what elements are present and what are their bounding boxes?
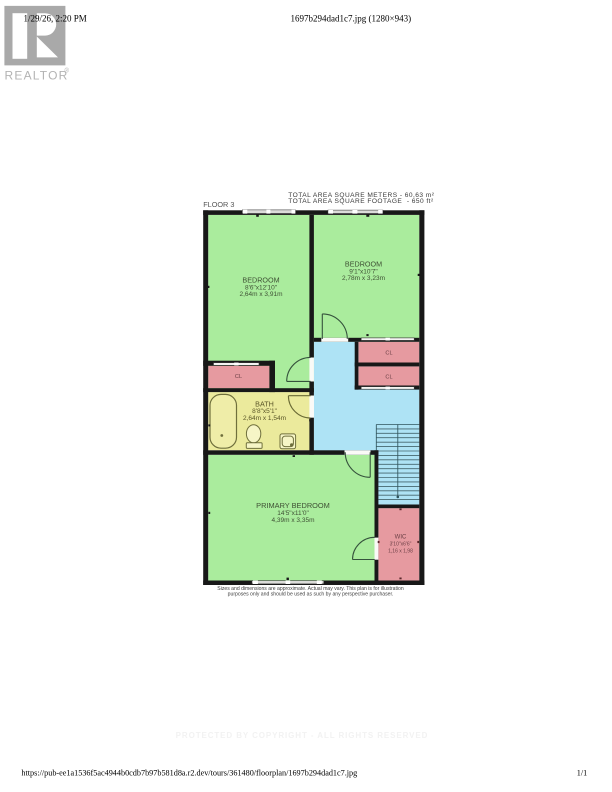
svg-text:TOTAL AREA SQUARE FOOTAGE - 6: TOTAL AREA SQUARE FOOTAGE - 650 ft²	[288, 198, 434, 205]
svg-text:purposes only and should be us: purposes only and should be used as such…	[228, 592, 394, 598]
svg-text:1/29/26, 2:20 PM: 1/29/26, 2:20 PM	[24, 14, 87, 24]
svg-text:1697b294dad1c7.jpg (1280×943): 1697b294dad1c7.jpg (1280×943)	[291, 14, 412, 24]
svg-text:BEDROOM: BEDROOM	[242, 276, 279, 285]
svg-text:REALTOR: REALTOR	[5, 69, 69, 83]
svg-text:4,39m x 3,35m: 4,39m x 3,35m	[272, 517, 315, 524]
svg-text:2,78m x 3,23m: 2,78m x 3,23m	[342, 275, 385, 282]
svg-text:®: ®	[65, 68, 70, 75]
svg-text:WIC: WIC	[395, 535, 407, 541]
svg-text:2,64m x 3,91m: 2,64m x 3,91m	[240, 291, 283, 298]
svg-text:1/1: 1/1	[577, 769, 587, 778]
svg-text:1,16 x 1,98: 1,16 x 1,98	[388, 548, 413, 554]
svg-text:CL: CL	[385, 374, 392, 380]
svg-text:2,64m x 1,54m: 2,64m x 1,54m	[243, 415, 286, 422]
svg-text:PROTECTED BY COPYRIGHT - ALL R: PROTECTED BY COPYRIGHT - ALL RIGHTS RESE…	[176, 731, 429, 740]
svg-text:BEDROOM: BEDROOM	[345, 260, 382, 269]
svg-text:FLOOR 3: FLOOR 3	[203, 200, 234, 209]
svg-text:3'10"x6'6": 3'10"x6'6"	[390, 541, 412, 547]
svg-text:PRIMARY BEDROOM: PRIMARY BEDROOM	[256, 501, 330, 510]
svg-text:CL: CL	[385, 350, 392, 356]
svg-text:CL: CL	[235, 374, 242, 380]
svg-text:https://pub-ee1a1536f5ac4944b0: https://pub-ee1a1536f5ac4944b0cdb7b97b58…	[21, 769, 357, 778]
